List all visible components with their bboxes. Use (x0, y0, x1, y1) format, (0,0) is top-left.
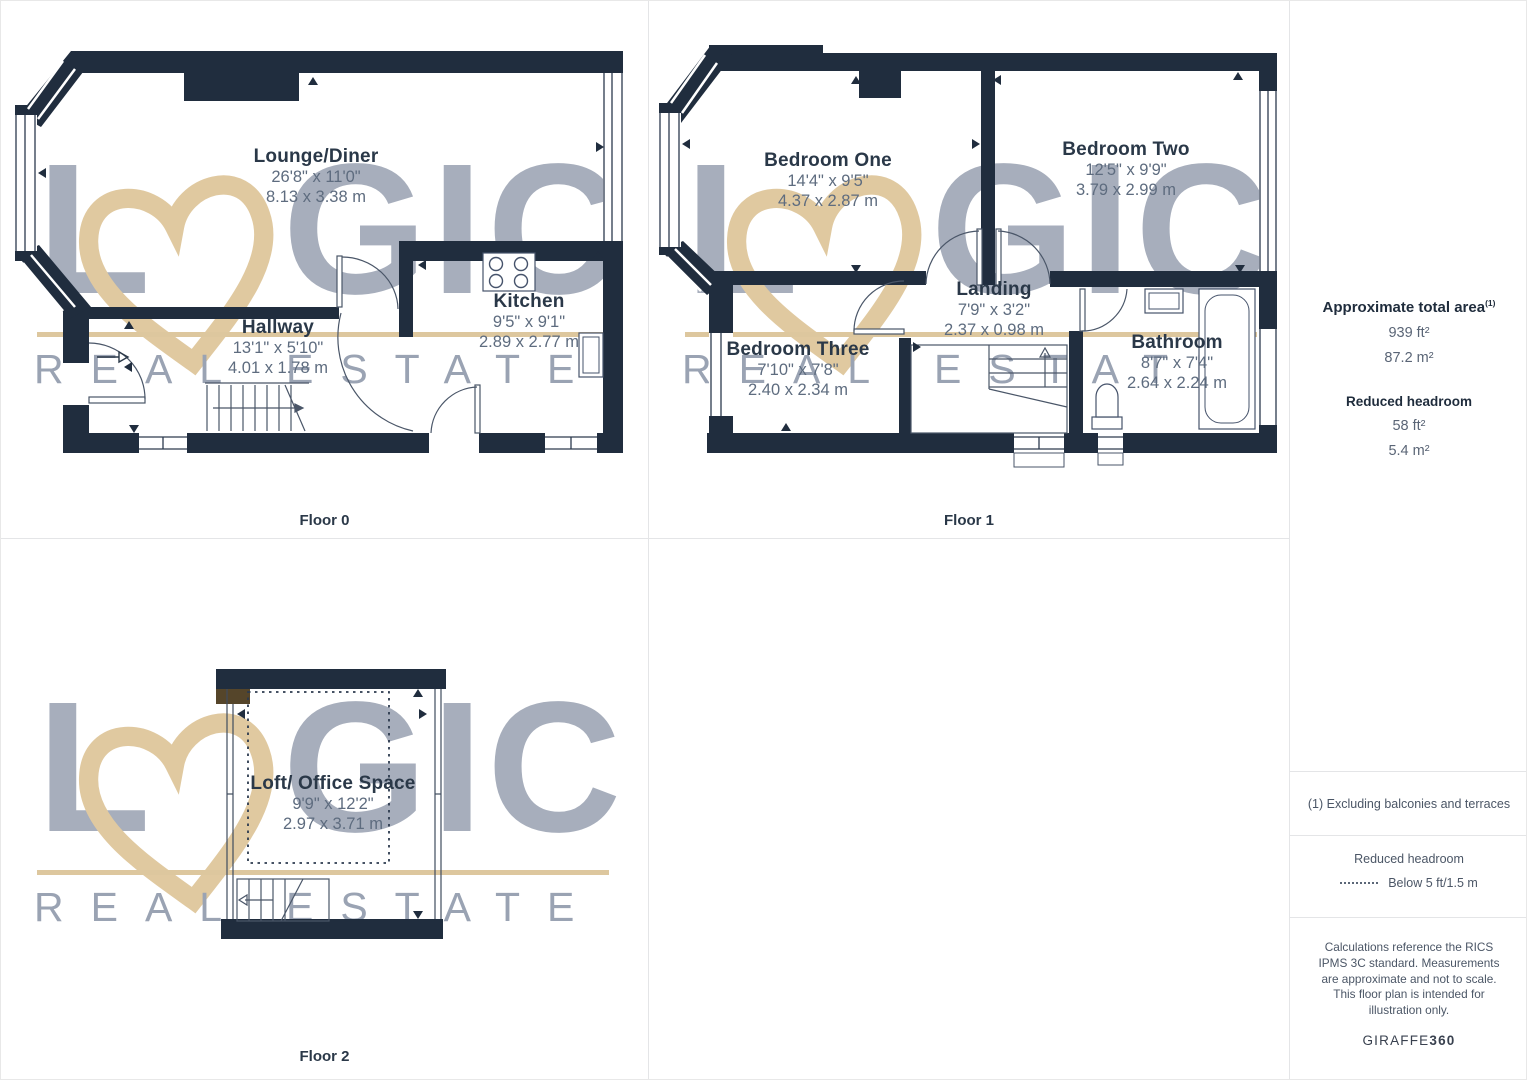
floorplan-page: LGIC REAL ESTATE (0, 0, 1527, 1080)
disclaimer-text: Calculations reference the RICS IPMS 3C … (1314, 940, 1504, 1019)
reduced-headroom-block (216, 689, 250, 704)
entry-arrow-icon (97, 352, 128, 362)
area-footnote: (1) Excluding balconies and terraces (1290, 771, 1527, 835)
legend-text: Below 5 ft/1.5 m (1388, 876, 1478, 890)
room-label-bedroom-two: Bedroom Two 12'5" x 9'9" 3.79 x 2.99 m (1062, 138, 1189, 200)
room-label-hallway: Hallway 13'1" x 5'10" 4.01 x 1.78 m (228, 316, 328, 378)
toilet-icon (1092, 417, 1122, 429)
empty-panel (649, 539, 1289, 1080)
reduced-headroom-m: 5.4 m² (1290, 443, 1527, 459)
reduced-headroom-ft: 58 ft² (1290, 418, 1527, 434)
hob-icon (483, 253, 535, 291)
kitchen-unit-icon (579, 333, 603, 377)
total-area-m: 87.2 m² (1290, 350, 1527, 366)
room-label-lounge-diner: Lounge/Diner 26'8" x 11'0" 8.13 x 3.38 m (254, 145, 379, 207)
area-summary: Approximate total area(1) 939 ft² 87.2 m… (1290, 1, 1527, 771)
dotted-line-icon (1340, 882, 1378, 884)
stairs-icon (911, 345, 1067, 433)
stairs-icon (205, 383, 309, 431)
room-label-bedroom-one: Bedroom One 14'4" x 9'5" 4.37 x 2.87 m (764, 149, 892, 211)
info-sidebar: Approximate total area(1) 939 ft² 87.2 m… (1289, 1, 1527, 1080)
reduced-headroom-legend: Reduced headroom Below 5 ft/1.5 m (1290, 835, 1527, 917)
stairs-icon (237, 879, 329, 921)
floor-1-caption: Floor 1 (944, 512, 994, 529)
floor-2-panel: LGIC REAL ESTATE (1, 539, 649, 1080)
legend-row: Below 5 ft/1.5 m (1290, 876, 1527, 890)
legend-title: Reduced headroom (1290, 852, 1527, 866)
room-label-bathroom: Bathroom 8'7" x 7'4" 2.64 x 2.24 m (1127, 331, 1227, 393)
reduced-headroom-title: Reduced headroom (1290, 394, 1527, 409)
disclaimer-section: Calculations reference the RICS IPMS 3C … (1290, 917, 1527, 1048)
floor-0-plan (1, 1, 649, 539)
room-label-kitchen: Kitchen 9'5" x 9'1" 2.89 x 2.77 m (479, 290, 579, 352)
room-label-landing: Landing 7'9" x 3'2" 2.37 x 0.98 m (944, 278, 1044, 340)
floor-2-caption: Floor 2 (299, 1048, 349, 1065)
giraffe360-logo: GIRAFFE360 (1290, 1033, 1527, 1048)
floor-0-panel: LGIC REAL ESTATE (1, 1, 649, 539)
room-label-loft-office: Loft/ Office Space 9'9" x 12'2" 2.97 x 3… (250, 772, 415, 834)
floor-0-walls (15, 51, 623, 453)
floor-1-panel: LGIC REAL ESTATE (649, 1, 1289, 539)
floor-1-plan (649, 1, 1289, 539)
total-area-title: Approximate total area(1) (1290, 298, 1527, 316)
floor-0-right-window (603, 73, 623, 241)
room-label-bedroom-three: Bedroom Three 7'10" x 7'8" 2.40 x 2.34 m (726, 338, 869, 400)
floor-0-caption: Floor 0 (299, 512, 349, 529)
total-area-ft: 939 ft² (1290, 325, 1527, 341)
footnote-marker: (1) (1485, 298, 1495, 308)
